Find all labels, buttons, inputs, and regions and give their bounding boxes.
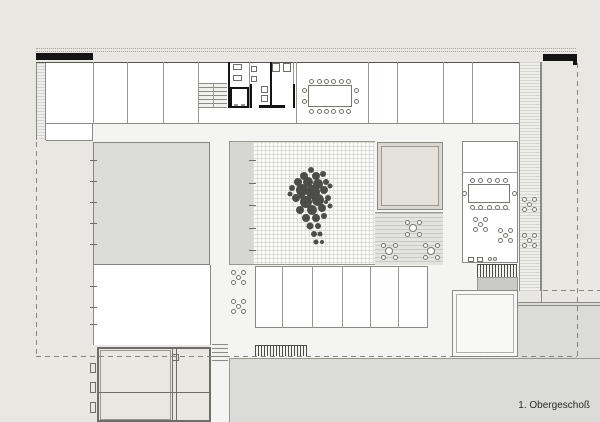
chair-icon [483,227,488,232]
partition-wall [93,62,94,124]
chair-icon [317,109,322,114]
chair-icon [339,79,344,84]
chair-icon [498,238,503,243]
partition-wall [127,62,128,124]
chair-icon [231,309,236,314]
chair-icon [532,207,537,212]
round-table [409,224,417,232]
chair-icon [309,79,314,84]
chair-icon [495,205,500,210]
chair-icon [508,228,513,233]
partition-wall [342,266,343,328]
partition-wall [163,62,164,124]
floor-caption: 1. Obergeschoß [470,400,590,411]
chair-icon [309,109,314,114]
chair-icon [417,232,422,237]
chair-icon [393,255,398,260]
chair-icon [236,275,241,280]
facade-tick [90,244,97,245]
facade-tick [90,160,97,161]
chair-icon [522,197,527,202]
chair-icon [405,232,410,237]
chair-icon [354,99,359,104]
chair-icon [346,79,351,84]
chair-icon [317,79,322,84]
chair-icon [231,299,236,304]
chair-icon [498,228,503,233]
facade-tick [249,250,256,251]
facade-tick [90,324,97,325]
chair-icon [331,79,336,84]
facade-tick [249,205,256,206]
chair-icon [241,280,246,285]
facade-tick [90,307,97,308]
partition-wall [198,62,199,124]
chair-icon [503,205,508,210]
facade-tick [90,181,97,182]
chair-icon [241,309,246,314]
chair-icon [435,243,440,248]
partition-wall [370,266,371,328]
chair-icon [483,217,488,222]
partition-wall [312,266,313,328]
round-table [427,247,435,255]
chair-icon [231,270,236,275]
chair-icon [532,233,537,238]
chair-icon [423,243,428,248]
chair-icon [405,220,410,225]
north-conference-table [308,85,352,107]
chair-icon [508,238,513,243]
chair-icon [302,99,307,104]
chair-icon [478,178,483,183]
chair-icon [527,238,532,243]
chair-icon [241,270,246,275]
chair-icon [346,109,351,114]
chair-icon [354,88,359,93]
partition-wall [282,266,283,328]
chair-icon [435,255,440,260]
facade-tick [249,228,256,229]
facade-tick [90,202,97,203]
floor-plan: 1. Obergeschoß [0,0,600,422]
chair-icon [236,304,241,309]
partition-wall [443,62,444,124]
chair-icon [417,220,422,225]
chair-icon [331,109,336,114]
chair-icon [522,243,527,248]
chair-icon [522,207,527,212]
chair-icon [324,79,329,84]
facade-tick [249,183,256,184]
chair-icon [503,178,508,183]
facade-tick [249,160,256,161]
chair-icon [478,205,483,210]
facade-tick [90,286,97,287]
chair-icon [493,257,497,261]
chair-icon [423,255,428,260]
furniture-layer [0,0,600,422]
chair-icon [503,233,508,238]
chair-icon [462,191,467,196]
facade-tick [90,223,97,224]
chair-icon [324,109,329,114]
chair-icon [522,233,527,238]
chair-icon [532,197,537,202]
partition-wall [398,266,399,328]
partition-wall [397,62,398,124]
chair-icon [488,257,492,261]
chair-icon [495,178,500,183]
chair-icon [381,243,386,248]
east-meeting-table [468,184,510,203]
partition-wall [368,62,369,124]
chair-icon [393,243,398,248]
chair-icon [470,178,475,183]
chair-icon [512,191,517,196]
chair-icon [381,255,386,260]
chair-icon [478,222,483,227]
chair-icon [241,299,246,304]
chair-icon [473,227,478,232]
chair-icon [473,217,478,222]
chair-icon [532,243,537,248]
chair-icon [527,202,532,207]
chair-icon [339,109,344,114]
chair-icon [487,205,492,210]
chair-icon [302,88,307,93]
chair-icon [231,280,236,285]
chair-icon [470,205,475,210]
chair-icon [487,178,492,183]
round-table [385,247,393,255]
partition-wall [472,62,473,124]
